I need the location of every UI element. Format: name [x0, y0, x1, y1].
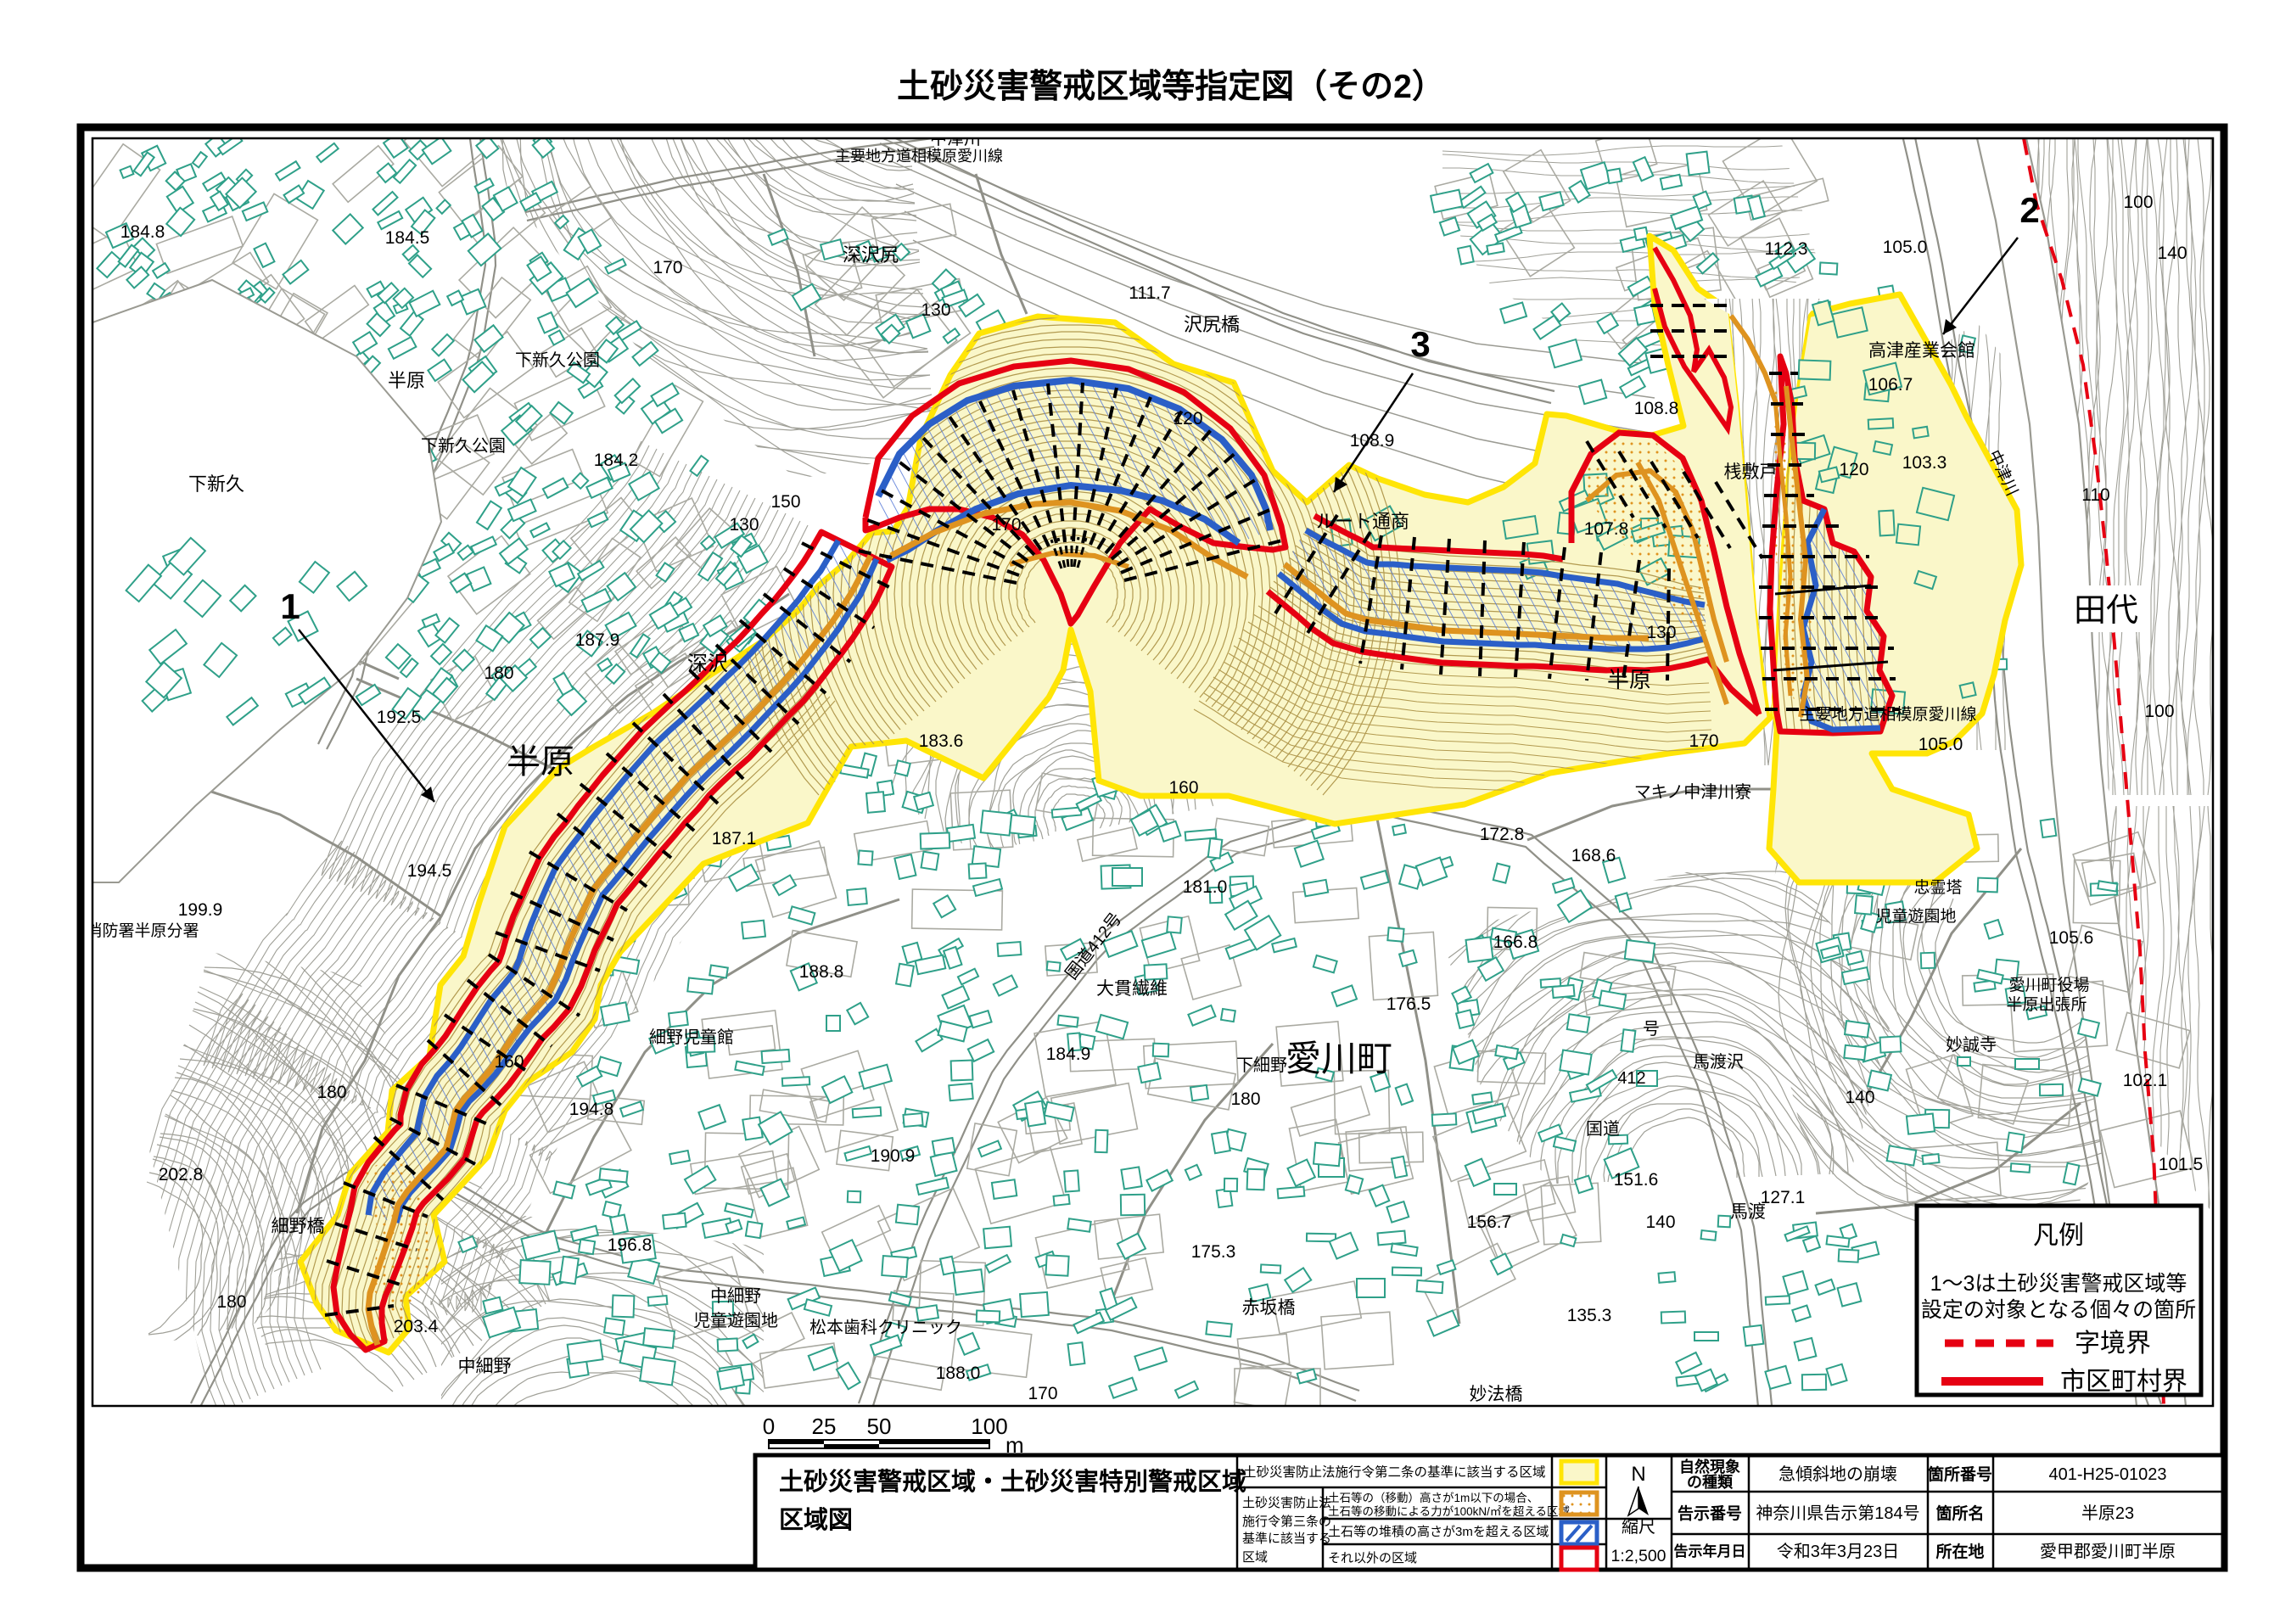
svg-text:ルート通商: ルート通商 [1316, 511, 1409, 532]
svg-text:土石等の（移動）高さが1m以下の場合、: 土石等の（移動）高さが1m以下の場合、 [1328, 1491, 1538, 1504]
svg-text:愛甲郡愛川町半原: 愛甲郡愛川町半原 [2040, 1542, 2176, 1561]
svg-text:112.3: 112.3 [1765, 239, 1808, 259]
svg-text:140: 140 [1645, 1212, 1675, 1232]
svg-text:180: 180 [216, 1292, 246, 1312]
svg-text:183.6: 183.6 [919, 731, 964, 751]
svg-text:412: 412 [1617, 1069, 1645, 1088]
svg-text:大貫繊維: 大貫繊維 [1096, 979, 1168, 999]
svg-text:151.6: 151.6 [1614, 1170, 1659, 1190]
svg-text:127.1: 127.1 [1761, 1188, 1806, 1207]
svg-text:下細野: 下細野 [1236, 1056, 1287, 1075]
svg-text:180: 180 [484, 664, 513, 683]
svg-text:100: 100 [2123, 193, 2153, 212]
svg-text:下新久: 下新久 [188, 473, 244, 495]
svg-text:主要地方道相模原愛川線: 主要地方道相模原愛川線 [1799, 705, 1976, 724]
svg-text:土砂災害防止法: 土砂災害防止法 [1242, 1496, 1331, 1510]
svg-text:100: 100 [971, 1414, 1007, 1439]
svg-text:半原23: 半原23 [2081, 1504, 2134, 1523]
svg-text:区域: 区域 [1242, 1550, 1268, 1565]
svg-text:105.0: 105.0 [1883, 238, 1928, 257]
svg-text:184.2: 184.2 [594, 451, 639, 470]
svg-text:の種類: の種類 [1687, 1473, 1734, 1491]
svg-text:土砂災害警戒区域・土砂災害特別警戒区域: 土砂災害警戒区域・土砂災害特別警戒区域 [779, 1468, 1246, 1496]
svg-text:N: N [1631, 1463, 1645, 1486]
svg-text:160: 160 [1168, 778, 1198, 798]
svg-text:130: 130 [729, 515, 759, 535]
svg-text:松本歯科クリニック: 松本歯科クリニック [809, 1318, 962, 1337]
svg-text:字境界: 字境界 [2075, 1330, 2151, 1358]
svg-text:愛川町役場: 愛川町役場 [2008, 976, 2089, 994]
svg-text:半原出張所: 半原出張所 [2006, 995, 2087, 1014]
svg-text:下新久公園: 下新久公園 [515, 350, 600, 370]
svg-text:忠霊塔: 忠霊塔 [1913, 878, 1962, 897]
svg-text:192.5: 192.5 [377, 708, 422, 727]
svg-text:140: 140 [2157, 244, 2187, 263]
svg-text:170: 170 [653, 258, 682, 277]
svg-text:中細野: 中細野 [710, 1286, 761, 1306]
svg-text:190.9: 190.9 [871, 1146, 916, 1166]
svg-text:馬渡沢: 馬渡沢 [1693, 1052, 1744, 1072]
svg-text:中細野: 中細野 [458, 1357, 512, 1376]
svg-text:188.8: 188.8 [799, 962, 844, 982]
svg-text:130: 130 [1646, 623, 1676, 642]
svg-text:妙誠寺: 妙誠寺 [1946, 1035, 1997, 1055]
svg-text:156.7: 156.7 [1467, 1212, 1512, 1232]
svg-text:108.8: 108.8 [1634, 399, 1679, 418]
svg-text:106.7: 106.7 [1868, 375, 1913, 395]
svg-text:赤坂橋: 赤坂橋 [1242, 1298, 1296, 1318]
svg-text:180: 180 [316, 1083, 346, 1102]
svg-text:100: 100 [2144, 702, 2174, 721]
svg-text:170: 170 [1689, 731, 1718, 751]
svg-text:1: 1 [280, 586, 300, 626]
svg-text:3: 3 [1410, 324, 1430, 364]
svg-text:1～3は土砂災害警戒区域等: 1～3は土砂災害警戒区域等 [1930, 1272, 2187, 1296]
svg-text:高津産業会館: 高津産業会館 [1868, 341, 1975, 361]
svg-text:マキノ中津川寮: マキノ中津川寮 [1634, 782, 1752, 802]
svg-text:国道: 国道 [1586, 1119, 1620, 1139]
svg-text:号: 号 [1643, 1020, 1660, 1039]
svg-text:土石等の堆積の高さが3mを超える区域: 土石等の堆積の高さが3mを超える区域 [1328, 1524, 1549, 1539]
svg-text:告示年月日: 告示年月日 [1674, 1543, 1746, 1560]
svg-text:25: 25 [812, 1414, 837, 1439]
svg-text:170: 170 [991, 515, 1021, 535]
svg-text:135.3: 135.3 [1567, 1306, 1612, 1325]
svg-text:半原: 半原 [388, 370, 425, 391]
svg-text:194.8: 194.8 [569, 1100, 614, 1119]
svg-text:半原: 半原 [1607, 667, 1651, 692]
svg-text:105.6: 105.6 [2049, 928, 2094, 948]
svg-text:187.9: 187.9 [575, 630, 620, 650]
svg-text:184.9: 184.9 [1046, 1044, 1091, 1064]
svg-text:半原: 半原 [507, 743, 574, 781]
svg-text:184.8: 184.8 [120, 222, 165, 242]
svg-text:妙法橋: 妙法橋 [1470, 1385, 1523, 1404]
svg-text:児童遊園地: 児童遊園地 [1875, 907, 1956, 926]
svg-text:縮尺: 縮尺 [1622, 1517, 1655, 1537]
svg-text:181.0: 181.0 [1183, 877, 1228, 897]
svg-text:120: 120 [1839, 460, 1868, 479]
svg-text:107.8: 107.8 [1584, 519, 1629, 539]
svg-text:196.8: 196.8 [608, 1235, 653, 1255]
svg-text:160: 160 [494, 1052, 524, 1072]
svg-text:深沢: 深沢 [687, 652, 728, 675]
svg-text:桟敷戸: 桟敷戸 [1724, 462, 1778, 482]
svg-text:土石等の移動による力が100kN/㎡を超える区域: 土石等の移動による力が100kN/㎡を超える区域 [1328, 1504, 1570, 1518]
svg-text:176.5: 176.5 [1386, 994, 1431, 1014]
svg-text:箇所番号: 箇所番号 [1928, 1464, 1992, 1484]
svg-text:土砂災害防止法施行令第二条の基準に該当する区域: 土砂災害防止法施行令第二条の基準に該当する区域 [1243, 1464, 1546, 1480]
svg-text:188.0: 188.0 [936, 1364, 981, 1383]
svg-text:沢尻橋: 沢尻橋 [1184, 314, 1240, 335]
svg-text:105.0: 105.0 [1919, 735, 1963, 754]
svg-text:202.8: 202.8 [159, 1165, 204, 1184]
svg-text:箇所名: 箇所名 [1935, 1504, 1984, 1523]
svg-text:下新久公園: 下新久公園 [421, 436, 506, 456]
svg-text:2: 2 [2019, 190, 2039, 230]
svg-text:194.5: 194.5 [407, 861, 452, 881]
svg-text:199.9: 199.9 [178, 900, 223, 920]
svg-text:神奈川県告示第184号: 神奈川県告示第184号 [1756, 1504, 1919, 1523]
svg-text:120: 120 [1173, 409, 1202, 428]
svg-text:土砂災害警戒区域等指定図（その2）: 土砂災害警戒区域等指定図（その2） [897, 69, 1445, 105]
svg-text:168.6: 168.6 [1571, 846, 1616, 865]
svg-text:1:2,500: 1:2,500 [1610, 1547, 1666, 1565]
svg-text:消防署半原分署: 消防署半原分署 [86, 921, 199, 940]
svg-text:凡例: 凡例 [2033, 1222, 2084, 1250]
svg-text:180: 180 [1230, 1089, 1260, 1109]
svg-text:自然現象: 自然現象 [1679, 1458, 1740, 1476]
svg-text:140: 140 [1845, 1088, 1874, 1107]
svg-text:166.8: 166.8 [1493, 932, 1538, 952]
svg-text:細野橋: 細野橋 [272, 1217, 325, 1236]
svg-text:101.5: 101.5 [2159, 1155, 2204, 1174]
svg-text:150: 150 [770, 492, 800, 512]
svg-text:愛川町: 愛川町 [1286, 1039, 1392, 1078]
svg-text:令和3年3月23日: 令和3年3月23日 [1777, 1542, 1900, 1561]
svg-text:児童遊園地: 児童遊園地 [693, 1311, 778, 1330]
svg-text:基準に該当する: 基準に該当する [1242, 1532, 1331, 1546]
svg-text:175.3: 175.3 [1191, 1242, 1236, 1262]
svg-text:区域図: 区域図 [779, 1506, 853, 1534]
svg-text:184.5: 184.5 [385, 228, 430, 248]
svg-text:施行令第三条の: 施行令第三条の [1242, 1514, 1331, 1529]
svg-text:細野児童館: 細野児童館 [649, 1028, 734, 1047]
svg-text:110: 110 [2081, 485, 2109, 505]
svg-text:50: 50 [867, 1414, 892, 1439]
svg-text:告示番号: 告示番号 [1678, 1504, 1742, 1523]
svg-text:深沢尻: 深沢尻 [843, 244, 899, 266]
svg-text:170: 170 [1028, 1384, 1057, 1403]
svg-text:設定の対象となる個々の箇所: 設定の対象となる個々の箇所 [1921, 1298, 2196, 1322]
svg-text:187.1: 187.1 [712, 829, 757, 848]
svg-text:172.8: 172.8 [1480, 825, 1525, 844]
svg-text:主要地方道相模原愛川線: 主要地方道相模原愛川線 [835, 148, 1003, 165]
svg-text:所在地: 所在地 [1935, 1542, 1984, 1561]
svg-text:田代: 田代 [2074, 593, 2138, 629]
svg-text:130: 130 [921, 300, 950, 320]
svg-text:急傾斜地の崩壊: 急傾斜地の崩壊 [1778, 1464, 1897, 1484]
svg-text:111.7: 111.7 [1129, 283, 1170, 303]
svg-text:それ以外の区域: それ以外の区域 [1328, 1551, 1417, 1565]
svg-text:103.3: 103.3 [1902, 453, 1947, 473]
svg-text:203.4: 203.4 [394, 1317, 439, 1336]
svg-text:401-H25-01023: 401-H25-01023 [2049, 1465, 2167, 1484]
svg-text:0: 0 [763, 1414, 775, 1439]
svg-text:市区町村界: 市区町村界 [2060, 1368, 2187, 1396]
svg-text:102.1: 102.1 [2123, 1071, 2168, 1090]
